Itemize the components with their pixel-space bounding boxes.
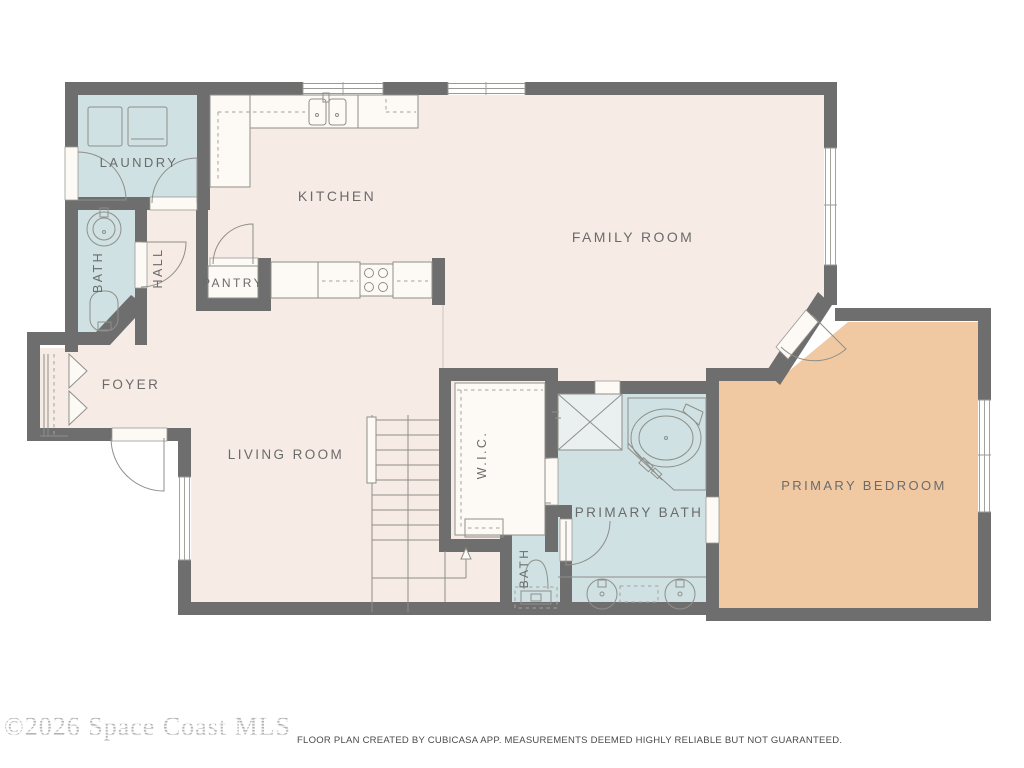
room-label-hall: HALL (151, 248, 165, 289)
floor-plan-page: LAUNDRY BATH HALL KITCHEN PANTRY FAMILY … (0, 0, 1024, 768)
room-label-bath-upper: BATH (91, 251, 105, 293)
kitchen-counter-left (210, 95, 250, 187)
room-label-kitchen: KITCHEN (298, 188, 376, 204)
room-label-living-room: LIVING ROOM (228, 447, 344, 462)
room-label-foyer: FOYER (102, 377, 161, 392)
room-label-bath-lower: BATH (517, 548, 531, 589)
room-label-primary-bedroom: PRIMARY BEDROOM (781, 478, 947, 493)
room-label-pantry: PANTRY (202, 276, 264, 290)
floor-plan-canvas: LAUNDRY BATH HALL KITCHEN PANTRY FAMILY … (0, 0, 1024, 768)
window-kitchen-2 (448, 82, 525, 95)
bath-upper-door-sill (135, 242, 147, 288)
family-bath-opening-sill (595, 381, 620, 394)
window-bedroom-right (978, 400, 991, 512)
window-family-right (824, 148, 837, 265)
foyer-exterior-door (111, 438, 164, 491)
room-label-laundry: LAUNDRY (100, 155, 179, 170)
cubicasa-disclaimer: FLOOR PLAN CREATED BY CUBICASA APP. MEAS… (297, 735, 842, 746)
stove-icon (360, 264, 393, 296)
foyer-exterior-door-sill (112, 428, 167, 441)
bedroom-bath-opening-sill (706, 497, 719, 543)
wic-detail (455, 383, 545, 537)
room-label-family-room: FAMILY ROOM (572, 229, 694, 245)
wic-door-sill (545, 458, 558, 505)
room-label-wic: W.I.C. (475, 431, 489, 479)
window-kitchen-1 (303, 82, 383, 95)
laundry-exterior-door-sill (65, 147, 78, 200)
laundry-hall-door-sill (150, 197, 197, 210)
window-living-left (178, 477, 191, 560)
stair-railing (367, 417, 376, 483)
room-label-primary-bath: PRIMARY BATH (575, 505, 704, 520)
